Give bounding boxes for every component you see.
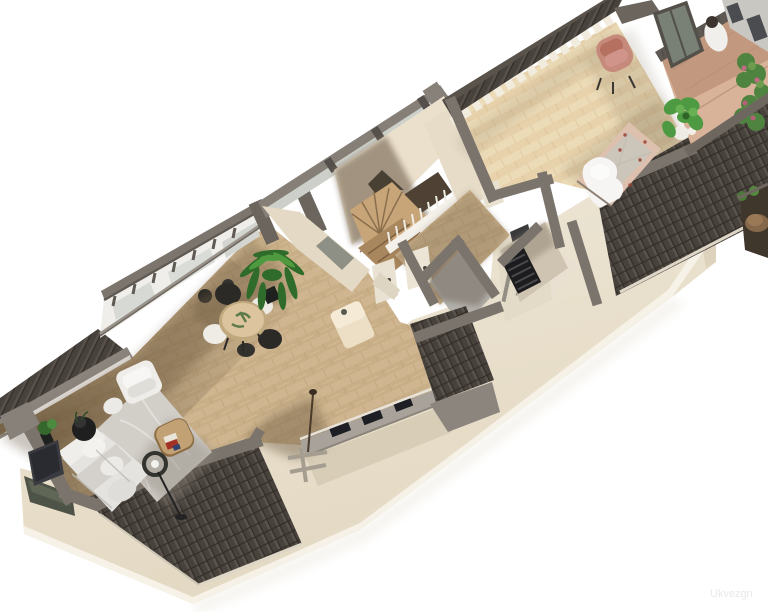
- svg-text:Ukvezgn: Ukvezgn: [710, 588, 753, 600]
